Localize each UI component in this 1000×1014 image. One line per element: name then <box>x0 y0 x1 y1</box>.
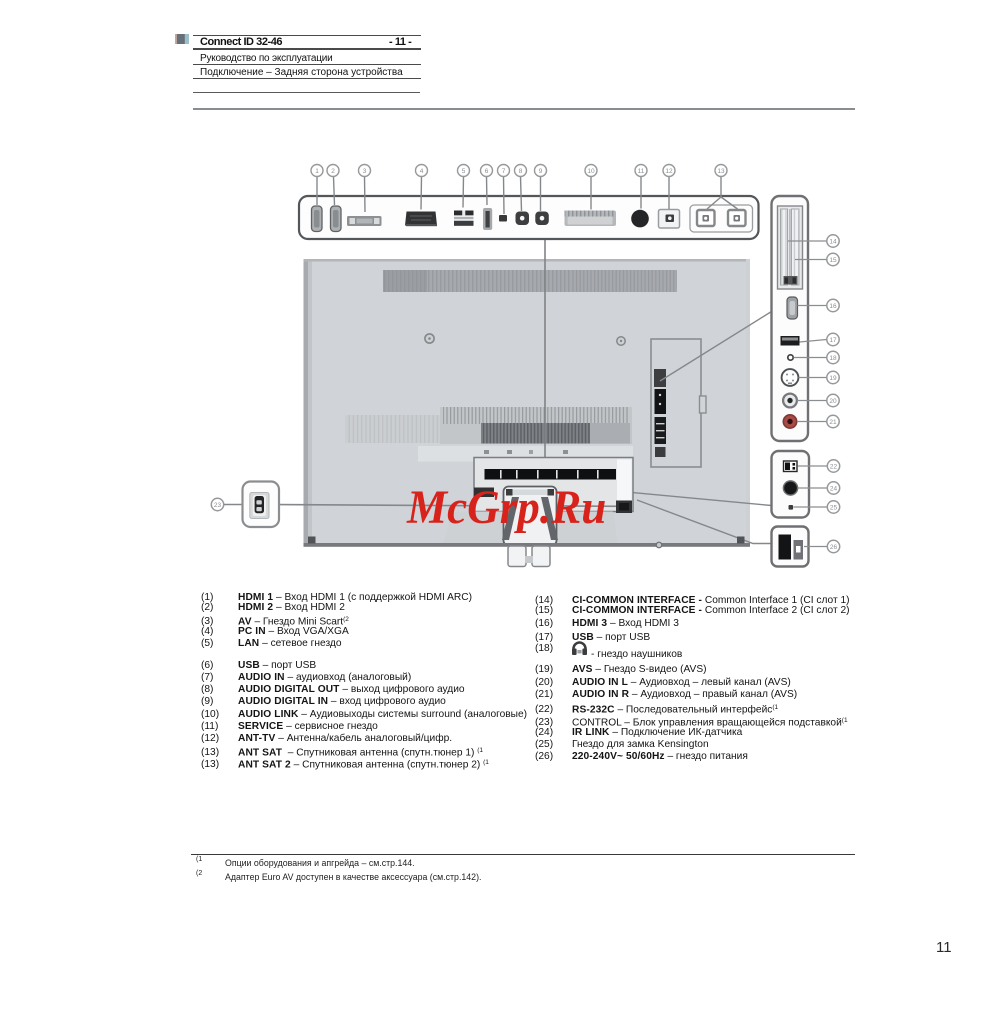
svg-text:9: 9 <box>539 168 543 175</box>
svg-text:2: 2 <box>331 168 335 175</box>
svg-text:22: 22 <box>830 464 838 471</box>
svg-text:15: 15 <box>829 257 837 264</box>
svg-text:20: 20 <box>829 398 837 405</box>
svg-text:17: 17 <box>829 337 837 344</box>
svg-text:11: 11 <box>638 168 645 175</box>
svg-text:24: 24 <box>830 486 838 493</box>
svg-text:3: 3 <box>363 168 367 175</box>
svg-text:25: 25 <box>830 505 838 512</box>
svg-text:7: 7 <box>502 168 506 175</box>
svg-text:21: 21 <box>829 419 837 426</box>
svg-text:12: 12 <box>665 168 673 175</box>
svg-text:10: 10 <box>587 168 595 175</box>
svg-text:14: 14 <box>829 239 837 246</box>
svg-text:5: 5 <box>462 168 466 175</box>
svg-text:1: 1 <box>315 168 319 175</box>
svg-text:18: 18 <box>829 355 837 362</box>
svg-text:19: 19 <box>829 375 837 382</box>
svg-text:13: 13 <box>717 168 725 175</box>
svg-text:4: 4 <box>420 168 424 175</box>
svg-text:16: 16 <box>829 303 837 310</box>
svg-text:26: 26 <box>830 544 838 551</box>
svg-text:6: 6 <box>485 168 489 175</box>
svg-text:23: 23 <box>214 502 222 509</box>
svg-text:8: 8 <box>519 168 523 175</box>
